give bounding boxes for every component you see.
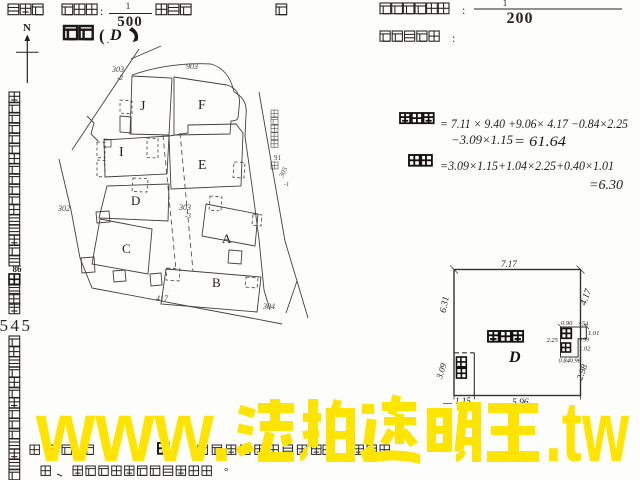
svg-text:304: 304 xyxy=(262,302,275,311)
svg-text:A: A xyxy=(222,231,232,246)
svg-text:6.31: 6.31 xyxy=(439,295,452,313)
svg-text:1.02: 1.02 xyxy=(579,346,591,353)
svg-text:200: 200 xyxy=(507,10,534,27)
svg-text:4.17: 4.17 xyxy=(579,287,595,307)
svg-text:.: . xyxy=(107,37,109,45)
svg-text:417: 417 xyxy=(156,294,169,303)
svg-text:86: 86 xyxy=(13,264,23,274)
svg-text:D: D xyxy=(109,27,122,44)
svg-text:= 61.64: = 61.64 xyxy=(514,134,567,150)
svg-text:D: D xyxy=(131,193,140,208)
svg-text::: : xyxy=(100,4,103,18)
svg-text:(: ( xyxy=(99,26,105,45)
svg-text:I: I xyxy=(119,145,124,160)
svg-text:0.96: 0.96 xyxy=(570,358,582,365)
svg-text:545: 545 xyxy=(0,316,33,335)
svg-text:E: E xyxy=(198,158,207,173)
svg-text:1: 1 xyxy=(503,0,508,8)
svg-text:.tw: .tw xyxy=(545,385,630,480)
svg-text:-3: -3 xyxy=(185,212,191,220)
svg-text:-1: -1 xyxy=(284,182,289,188)
svg-text:www.: www. xyxy=(35,385,232,480)
svg-text:302: 302 xyxy=(57,204,70,213)
svg-text:0.90: 0.90 xyxy=(561,320,573,327)
svg-text:×99: ×99 xyxy=(579,338,589,344)
svg-text::: : xyxy=(462,3,465,17)
svg-text:−3.09×1.15: −3.09×1.15 xyxy=(451,133,513,147)
svg-text:×54: ×54 xyxy=(578,321,590,328)
svg-text:903: 903 xyxy=(186,62,198,71)
svg-text:B: B xyxy=(212,275,221,290)
svg-text:1.01: 1.01 xyxy=(588,330,599,337)
svg-text:C: C xyxy=(122,241,131,256)
svg-text:N: N xyxy=(23,22,31,34)
svg-text:-2: -2 xyxy=(117,74,123,82)
svg-text:91: 91 xyxy=(274,154,282,162)
svg-text:J: J xyxy=(140,99,146,114)
svg-text::: : xyxy=(452,31,455,45)
svg-text:F: F xyxy=(198,98,206,113)
svg-text:1: 1 xyxy=(126,1,131,11)
svg-text:=3.09×1.15+1.04×2.25+0.40×1.01: =3.09×1.15+1.04×2.25+0.40×1.01 xyxy=(440,159,614,173)
svg-text:303: 303 xyxy=(111,65,124,74)
svg-text:= 7.11 × 9.40 +9.06× 4.17 −0.8: = 7.11 × 9.40 +9.06× 4.17 −0.84×2.25 xyxy=(440,117,628,131)
svg-text:3.09: 3.09 xyxy=(434,361,449,380)
svg-text:=6.30: =6.30 xyxy=(589,178,623,193)
svg-text:D: D xyxy=(508,349,521,366)
svg-text:2.25: 2.25 xyxy=(547,337,559,344)
svg-text:7.17: 7.17 xyxy=(501,259,517,269)
svg-text:305: 305 xyxy=(277,165,289,179)
svg-text:2.98: 2.98 xyxy=(574,363,589,382)
svg-text:303: 303 xyxy=(178,203,191,212)
